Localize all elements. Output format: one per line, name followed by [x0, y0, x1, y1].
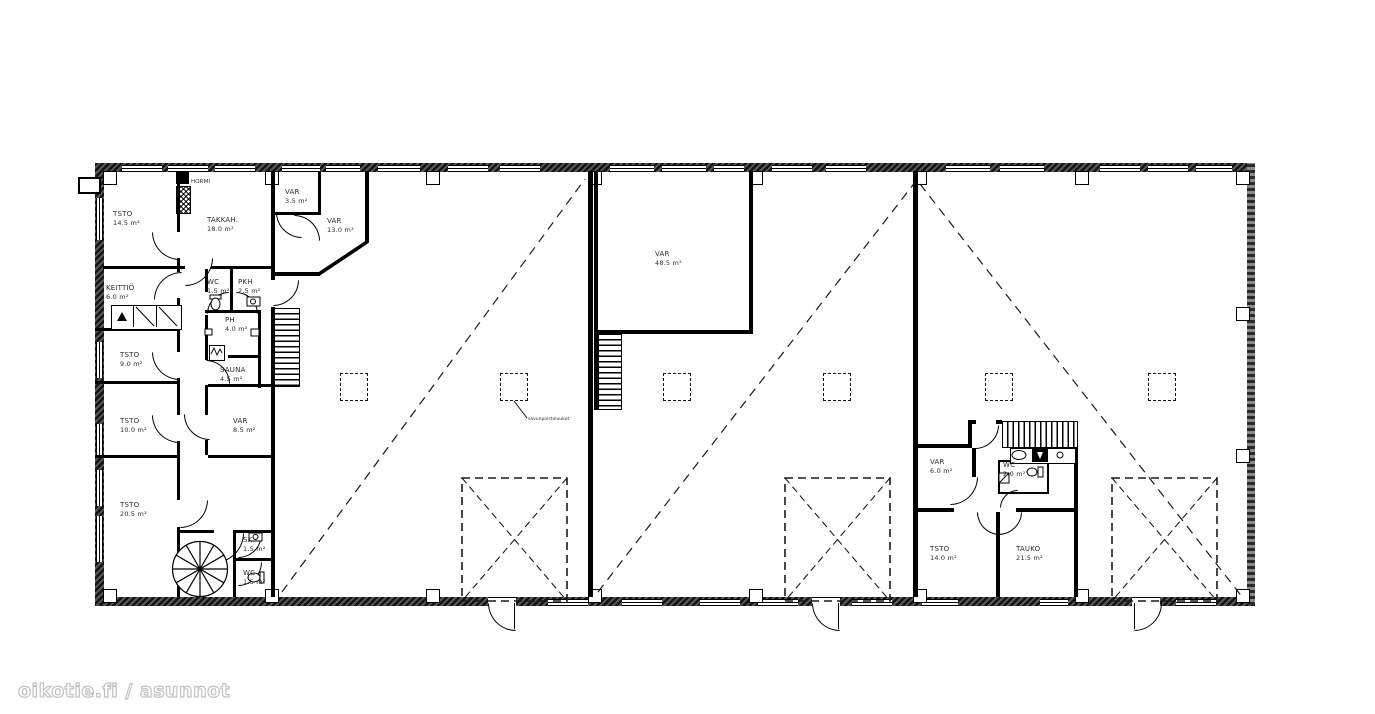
room-name: TSTO: [120, 501, 139, 509]
room-area: 21.5 m²: [1016, 554, 1043, 563]
room-label-takkah: TAKKAH. 18.0 m²: [207, 216, 238, 233]
window: [922, 599, 958, 606]
wall: [365, 171, 369, 243]
room-name: SK: [243, 536, 252, 544]
smoke-vent-label: savunpoistoluukut: [528, 416, 569, 425]
room-name: TSTO: [113, 210, 132, 218]
window: [1176, 599, 1216, 606]
window: [826, 165, 866, 172]
pillar: [1236, 307, 1250, 321]
room-name: WC: [207, 278, 219, 286]
room-area: 1.5 m²: [243, 578, 266, 587]
room-name: TAKKAH.: [207, 216, 238, 224]
room-area: 10.0 m²: [120, 426, 147, 435]
smoke-vent: [340, 373, 368, 401]
counter-divider: [156, 306, 157, 327]
window: [946, 165, 990, 172]
room-name: TSTO: [120, 417, 139, 425]
door-arc: [975, 425, 999, 449]
room-area: 48.5 m²: [655, 259, 682, 268]
room-area: 14.5 m²: [113, 219, 140, 228]
pillar: [1075, 171, 1089, 185]
door-arc: [950, 477, 978, 505]
window: [96, 470, 103, 506]
room-label-sauna: SAUNA 4.5 m²: [220, 366, 246, 383]
wall: [318, 171, 321, 215]
room-label-pkh: PKH 2.5 m²: [238, 278, 261, 295]
window: [772, 165, 812, 172]
leader-line: [514, 401, 527, 418]
wall: [236, 558, 271, 561]
door-arc: [184, 414, 210, 440]
window: [282, 165, 320, 172]
window: [1100, 165, 1140, 172]
wall: [968, 420, 972, 448]
door-arc: [998, 512, 1022, 535]
roof-line-dashed: [282, 179, 1243, 598]
room-label-wc-bottom: WC 1.5 m²: [243, 569, 266, 586]
wall: [275, 272, 320, 276]
wall: [103, 266, 185, 269]
door-arc: [152, 352, 180, 380]
window: [448, 165, 488, 172]
room-label-ph: PH 4.0 m²: [225, 316, 248, 333]
wall-partition: [588, 171, 593, 597]
room-name: PH: [225, 316, 235, 324]
chimney-hatch: [176, 186, 191, 214]
room-label-var-3-5: VAR 3.5 m²: [285, 188, 308, 205]
window: [378, 165, 420, 172]
exterior-door-arc: [812, 603, 840, 631]
wall: [95, 455, 180, 458]
wall: [177, 527, 180, 597]
room-area: 1.5 m²: [243, 545, 266, 554]
wall: [205, 315, 208, 360]
window: [96, 516, 103, 562]
door-arc: [207, 292, 229, 314]
wall: [228, 355, 261, 358]
room-area: 9.0 m²: [120, 360, 143, 369]
wall: [749, 171, 753, 334]
door-arc: [294, 215, 320, 241]
window: [326, 165, 360, 172]
door-arc: [180, 500, 208, 528]
window: [1148, 165, 1188, 172]
window: [714, 165, 744, 172]
pillar: [103, 171, 117, 185]
wall: [968, 420, 976, 424]
room-area: 8.5 m²: [233, 426, 256, 435]
wall: [177, 441, 180, 500]
staircase: [274, 308, 300, 387]
room-label-tsto-9: TSTO 9.0 m²: [120, 351, 143, 368]
room-label-tsto-10: TSTO 10.0 m²: [120, 417, 147, 434]
fridge-mark: [1037, 452, 1043, 459]
door-arc: [154, 272, 182, 300]
room-name: TSTO: [120, 351, 139, 359]
pillar: [103, 589, 117, 603]
door-leaf: [514, 603, 515, 629]
smoke-vent: [500, 373, 528, 401]
wall: [205, 440, 208, 455]
room-name: WC: [1003, 461, 1015, 469]
exterior-door-arc: [488, 603, 516, 631]
stove-icon: [117, 312, 127, 321]
pillar: [749, 589, 763, 603]
pillar: [1236, 589, 1250, 603]
wall: [95, 381, 180, 384]
room-area: 14.0 m²: [930, 554, 957, 563]
pillar: [426, 589, 440, 603]
wall: [208, 384, 271, 387]
door-arc: [236, 292, 258, 314]
window: [122, 165, 162, 172]
wall: [972, 448, 976, 477]
smoke-vent: [1148, 373, 1176, 401]
window: [500, 165, 540, 172]
door-leaf: [838, 603, 839, 629]
room-area: 18.0 m²: [207, 225, 238, 234]
window: [96, 342, 103, 378]
wall: [230, 269, 233, 313]
room-label-sk: SK 1.5 m²: [243, 536, 266, 553]
room-name: VAR: [233, 417, 248, 425]
room-area: 4.0 m²: [225, 325, 248, 334]
hatch-zone-cross: [462, 478, 1217, 601]
exterior-door-arc: [1134, 603, 1162, 631]
window: [215, 165, 255, 172]
room-label-var-6: VAR 6.0 m²: [930, 458, 953, 475]
door-arc: [152, 232, 180, 260]
room-name: WC: [243, 569, 255, 577]
room-name: VAR: [285, 188, 300, 196]
room-label-keittio: KEITTIÖ 6.0 m²: [106, 284, 134, 301]
smoke-vent: [663, 373, 691, 401]
wall: [915, 444, 972, 448]
counter-divider: [133, 306, 134, 327]
window: [1000, 165, 1044, 172]
door-leaf: [1134, 603, 1135, 629]
fixtures: [205, 295, 1063, 583]
wall: [1016, 508, 1078, 512]
window: [758, 599, 798, 606]
annotation-text: savunpoistoluukut: [528, 417, 569, 422]
window: [96, 424, 103, 458]
room-label-var-48-5: VAR 48.5 m²: [655, 250, 682, 267]
window: [852, 599, 892, 606]
room-area: 4.5 m²: [220, 375, 246, 384]
hatch-zone-box: [462, 478, 1217, 601]
staircase: [598, 334, 622, 410]
window: [1196, 165, 1232, 172]
window: [96, 198, 103, 240]
chimney-flue: [176, 172, 189, 184]
wall-partition: [913, 171, 918, 597]
room-area: 3.5 m²: [285, 197, 308, 206]
room-label-wc-2: WC 2.0 m²: [1003, 461, 1026, 478]
room-name: VAR: [930, 458, 945, 466]
washer-icon: [209, 345, 225, 361]
room-name: KEITTIÖ: [106, 284, 134, 292]
room-name: SAUNA: [220, 366, 246, 374]
pillar: [426, 171, 440, 185]
smoke-vent: [823, 373, 851, 401]
room-area: 2.0 m²: [1003, 470, 1026, 479]
door-arc: [977, 512, 1000, 535]
wall: [211, 266, 271, 269]
wall: [1074, 446, 1078, 597]
chamfer-wall: [319, 242, 367, 274]
room-label-tauko: TAUKO 21.5 m²: [1016, 545, 1043, 562]
room-name: VAR: [327, 217, 342, 225]
room-label-wc-mid: WC 1.5 m²: [207, 278, 230, 295]
room-label-tsto-20-5: TSTO 20.5 m²: [120, 501, 147, 518]
window: [622, 599, 662, 606]
staircase: [1002, 421, 1078, 448]
pillar: [1236, 449, 1250, 463]
hormi-label: HORMI: [191, 178, 210, 187]
room-name: TSTO: [930, 545, 949, 553]
annotation-text: HORMI: [191, 179, 210, 185]
room-area: 6.0 m²: [106, 293, 134, 302]
window: [662, 165, 706, 172]
wall: [177, 530, 214, 533]
room-name: TAUKO: [1016, 545, 1040, 553]
door-arc: [273, 280, 299, 306]
wall: [205, 385, 208, 415]
room-area: 2.5 m²: [238, 287, 261, 296]
room-label-tsto-14-5: TSTO 14.5 m²: [113, 210, 140, 227]
room-area: 20.5 m²: [120, 510, 147, 519]
window: [610, 165, 654, 172]
pillar: [1236, 171, 1250, 185]
room-area: 1.5 m²: [207, 287, 230, 296]
wall: [208, 455, 271, 458]
room-label-var-13: VAR 13.0 m²: [327, 217, 354, 234]
window: [168, 165, 208, 172]
wall: [258, 310, 261, 388]
wall-right: [1247, 163, 1255, 605]
room-area: 6.0 m²: [930, 467, 953, 476]
wall: [915, 508, 954, 512]
wall: [177, 258, 180, 272]
window: [548, 599, 588, 606]
wall-partition: [271, 171, 276, 280]
room-area: 13.0 m²: [327, 226, 354, 235]
window: [700, 599, 740, 606]
door-arc: [152, 415, 180, 443]
watermark: oikotie.fi / asunnot: [18, 680, 230, 702]
room-label-var-8-5: VAR 8.5 m²: [233, 417, 256, 434]
room-name: PKH: [238, 278, 253, 286]
floor-plan: TSTO 14.5 m² TAKKAH. 18.0 m² VAR 3.5 m² …: [0, 0, 1375, 714]
entrance-canopy: [78, 177, 101, 194]
smoke-vent: [985, 373, 1013, 401]
room-name: VAR: [655, 250, 670, 258]
room-label-tsto-14: TSTO 14.0 m²: [930, 545, 957, 562]
window: [1040, 599, 1068, 606]
